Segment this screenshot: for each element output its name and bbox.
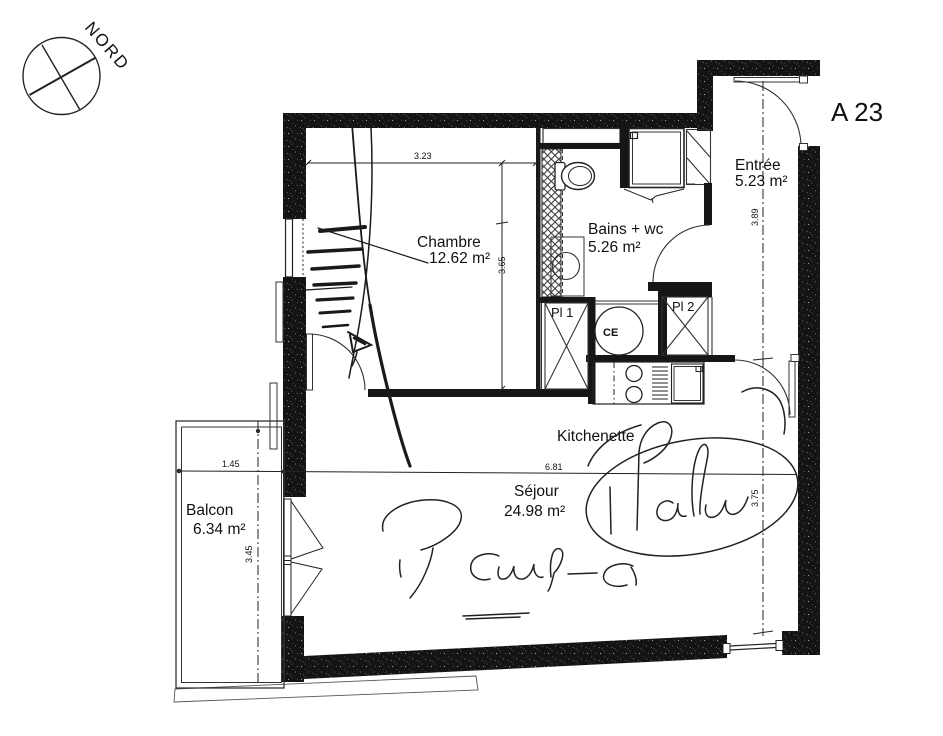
svg-text:3.65: 3.65 [497, 256, 507, 274]
svg-text:24.98 m²: 24.98 m² [504, 503, 565, 520]
svg-text:CE: CE [603, 327, 618, 339]
svg-text:Kitchenette: Kitchenette [557, 428, 635, 445]
svg-text:1.45: 1.45 [222, 459, 240, 469]
svg-text:Pl 2: Pl 2 [672, 299, 694, 314]
svg-text:6.81: 6.81 [545, 462, 563, 472]
svg-text:NORD: NORD [81, 18, 133, 74]
svg-text:Chambre: Chambre [417, 234, 481, 251]
svg-text:5.26 m²: 5.26 m² [588, 239, 641, 256]
svg-text:3.75: 3.75 [750, 489, 760, 507]
svg-text:Bains + wc: Bains + wc [588, 221, 664, 238]
svg-text:Entrée: Entrée [735, 157, 781, 174]
svg-text:3.45: 3.45 [244, 545, 254, 563]
svg-text:Séjour: Séjour [514, 483, 559, 500]
svg-text:Balcon: Balcon [186, 502, 233, 519]
svg-text:A 23: A 23 [831, 97, 883, 127]
svg-text:3.23: 3.23 [414, 151, 432, 161]
svg-text:3.89: 3.89 [750, 208, 760, 226]
svg-text:5.23 m²: 5.23 m² [735, 173, 788, 190]
svg-text:6.34 m²: 6.34 m² [193, 521, 246, 538]
svg-text:12.62 m²: 12.62 m² [429, 250, 490, 267]
svg-text:Pl 1: Pl 1 [551, 305, 573, 320]
